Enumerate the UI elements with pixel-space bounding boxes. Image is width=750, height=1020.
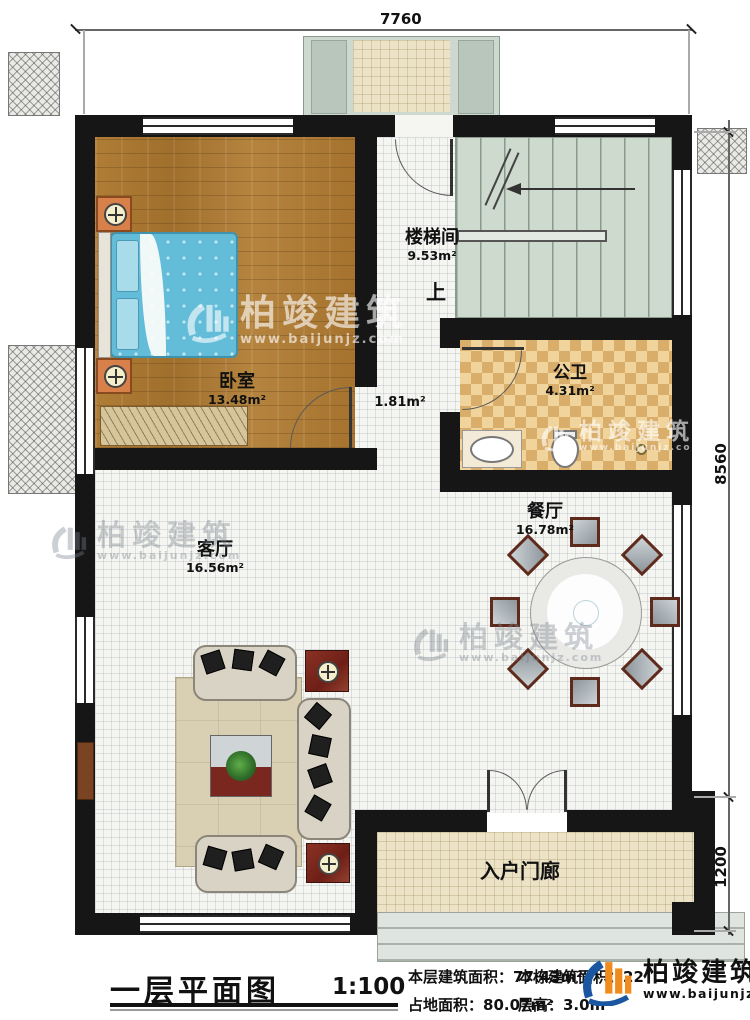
window-bedroom-left bbox=[75, 348, 95, 474]
floorplan-canvas: 楼梯间 9.53m² 上 卧室 13.48m² 公卫 4.31m² 1.81m²… bbox=[0, 0, 750, 1020]
window-bedroom-top bbox=[143, 117, 293, 135]
sofa-pillow bbox=[308, 734, 332, 758]
wall-bath-left-upper bbox=[440, 340, 460, 348]
door-entry-left-leaf bbox=[487, 770, 490, 812]
room-label-stairwell: 楼梯间 9.53m² bbox=[382, 228, 482, 263]
door-balcony-leaf bbox=[450, 139, 453, 196]
title-underline-black bbox=[110, 1003, 398, 1007]
dim-line-right bbox=[728, 120, 730, 935]
nightstand-bottom bbox=[96, 358, 132, 394]
wall-bedroom-right bbox=[355, 137, 377, 387]
brand-url: www.baijunjz.com bbox=[643, 986, 750, 1002]
exterior-hatch-topleft bbox=[8, 52, 60, 116]
stair-up-label: 上 bbox=[426, 276, 446, 305]
room-label-porch: 入户门廊 bbox=[450, 860, 590, 883]
sink bbox=[470, 436, 514, 463]
stair-up-arrow-head bbox=[506, 183, 521, 195]
dining-chair bbox=[650, 597, 680, 627]
dim-label-right-upper: 8560 bbox=[712, 443, 730, 485]
stair-up-arrow-line bbox=[520, 188, 635, 190]
wall-bath-bottom bbox=[440, 470, 692, 492]
door-bedroom-leaf bbox=[349, 387, 352, 448]
door-bathroom-leaf bbox=[462, 347, 524, 350]
dim-line-top bbox=[75, 29, 692, 31]
dim-ext bbox=[688, 30, 690, 114]
room-label-bathroom: 公卫 4.31m² bbox=[522, 364, 618, 398]
sofa-pillow bbox=[232, 649, 255, 672]
bed-headboard bbox=[98, 232, 111, 358]
brand-name: 柏竣建筑 bbox=[643, 960, 750, 986]
exterior-hatch-topright bbox=[697, 128, 747, 174]
bed-pillow-2 bbox=[116, 298, 139, 350]
side-table-bottom bbox=[306, 843, 350, 883]
room-label-bedroom: 卧室 13.48m² bbox=[187, 372, 287, 407]
wall-bath-left-lower bbox=[440, 412, 460, 470]
floor-stairwell bbox=[455, 137, 672, 318]
dim-ext bbox=[694, 930, 736, 932]
side-table-top bbox=[305, 650, 349, 692]
dim-ext bbox=[694, 796, 736, 798]
window-stair-right bbox=[672, 170, 692, 315]
floor-drain bbox=[636, 444, 647, 455]
total-area-text: 本栋建筑面积：22 bbox=[518, 966, 644, 987]
dim-ext bbox=[694, 131, 736, 133]
exterior-planter-left bbox=[8, 345, 77, 494]
window-living-left bbox=[75, 617, 95, 703]
balcony-pillar-left bbox=[311, 40, 347, 114]
balcony-deck bbox=[353, 40, 450, 112]
window-living-bottom bbox=[140, 915, 350, 933]
floor-height-text: 层高：3.0m bbox=[518, 994, 605, 1015]
door-balcony-gap bbox=[395, 115, 453, 137]
wall-left bbox=[75, 137, 95, 935]
wall-cabinet bbox=[77, 742, 94, 800]
wall-stair-bath-divider bbox=[440, 318, 692, 340]
room-label-dining: 餐厅 16.78m² bbox=[495, 502, 595, 537]
balcony-pillar-right bbox=[458, 40, 494, 114]
dining-table-center bbox=[573, 600, 599, 626]
title-underline-gray bbox=[110, 1009, 398, 1011]
wall-porch-left bbox=[355, 810, 377, 935]
sofa-pillow bbox=[231, 848, 254, 871]
top-balcony bbox=[303, 36, 500, 116]
dining-chair bbox=[570, 677, 600, 707]
room-label-living: 客厅 16.56m² bbox=[165, 540, 265, 575]
plan-scale: 1:100 bbox=[332, 974, 405, 1000]
bed-pillow-1 bbox=[116, 240, 139, 292]
wardrobe bbox=[100, 406, 248, 446]
door-entry-right-leaf bbox=[564, 770, 567, 812]
dim-label-right-lower: 1200 bbox=[712, 846, 730, 888]
coffee-table-plant bbox=[226, 751, 256, 781]
wall-bedroom-bottom bbox=[95, 448, 377, 470]
dim-label-top: 7760 bbox=[380, 10, 422, 28]
room-label-hallway: 1.81m² bbox=[368, 396, 432, 411]
wall-entry-left bbox=[377, 810, 487, 832]
nightstand-top bbox=[96, 196, 132, 232]
window-stair-top bbox=[555, 117, 655, 135]
dim-ext bbox=[83, 30, 85, 114]
dining-chair bbox=[490, 597, 520, 627]
